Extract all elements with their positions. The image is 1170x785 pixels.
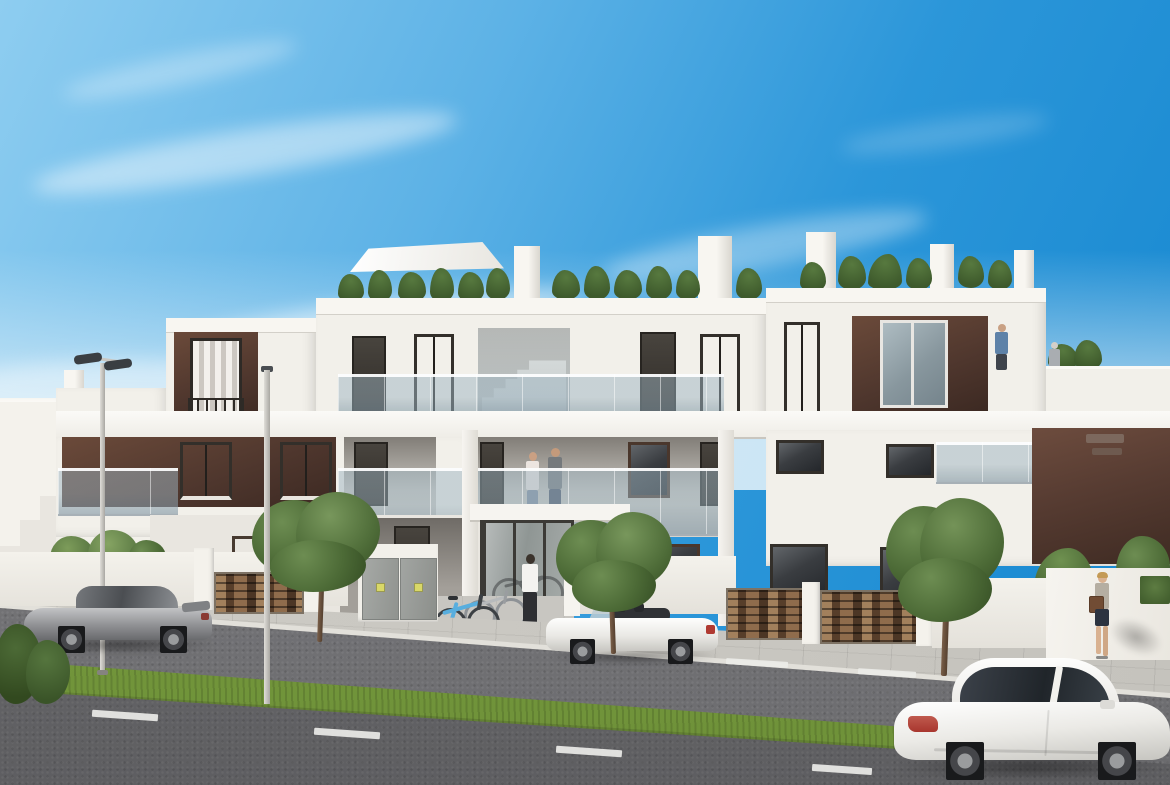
taillight [706, 625, 715, 634]
man-on-roof-terrace [994, 324, 1010, 370]
right-glazing-mullion [911, 320, 914, 408]
left-glass-balustrade [58, 468, 178, 516]
white-convertible [546, 598, 722, 666]
legs [996, 354, 1007, 370]
head [998, 324, 1006, 332]
wheel [1098, 742, 1136, 780]
roof-shade-sail [350, 242, 504, 272]
central-roof-fascia [316, 298, 766, 315]
roof-chimney [514, 246, 540, 300]
lamp-base [97, 670, 108, 675]
white-sport-coupe [894, 658, 1170, 785]
utility-door [400, 558, 437, 620]
leg [1103, 626, 1108, 656]
seat [448, 596, 458, 600]
first-floor-window [280, 442, 332, 500]
roof-chimney [930, 244, 954, 290]
woman-on-sidewalk [1094, 572, 1114, 660]
right-framed-glazing [880, 320, 948, 408]
utility-door [362, 558, 399, 620]
side-mirror [1100, 700, 1115, 709]
warning-sticker [414, 583, 423, 592]
right-glass-balustrade [936, 442, 1038, 484]
stone-gate [726, 588, 804, 640]
architectural-rendering [0, 0, 1170, 785]
first-floor-window [180, 442, 232, 500]
head [526, 554, 535, 564]
cloud [29, 97, 461, 210]
torso [995, 332, 1008, 354]
man-at-entrance [522, 554, 539, 630]
head [1051, 342, 1058, 349]
leg [1096, 626, 1101, 654]
taillight [908, 716, 938, 732]
right-roof-fascia [766, 288, 1046, 303]
hair [1097, 572, 1108, 578]
left-wing-roof-fascia [166, 318, 316, 333]
warning-sticker [376, 583, 385, 592]
wheel [570, 639, 595, 664]
right-tall-window [784, 322, 820, 414]
head [551, 448, 560, 457]
wheel [160, 626, 187, 653]
person-on-roof-terrace [1048, 342, 1061, 368]
legs [523, 592, 537, 626]
roof-chimney [1014, 250, 1034, 290]
wall-pillar [802, 582, 820, 644]
roof-stair-bulkhead [698, 236, 732, 300]
right-first-floor-window [776, 440, 824, 474]
wheel [668, 639, 693, 664]
cloud [60, 30, 301, 109]
brown-panel-vent [1092, 448, 1122, 455]
taillight [201, 613, 209, 620]
cloud [839, 106, 1051, 163]
roof-chimney [64, 370, 84, 390]
brown-panel-vent [1086, 434, 1124, 443]
head [529, 452, 537, 461]
torso-white-shirt [522, 564, 538, 592]
hedge-opening [1140, 576, 1170, 604]
second-lamp-pole [264, 370, 270, 704]
skirt [1095, 609, 1109, 626]
right-first-floor-window [886, 444, 934, 478]
wheel [946, 742, 984, 780]
